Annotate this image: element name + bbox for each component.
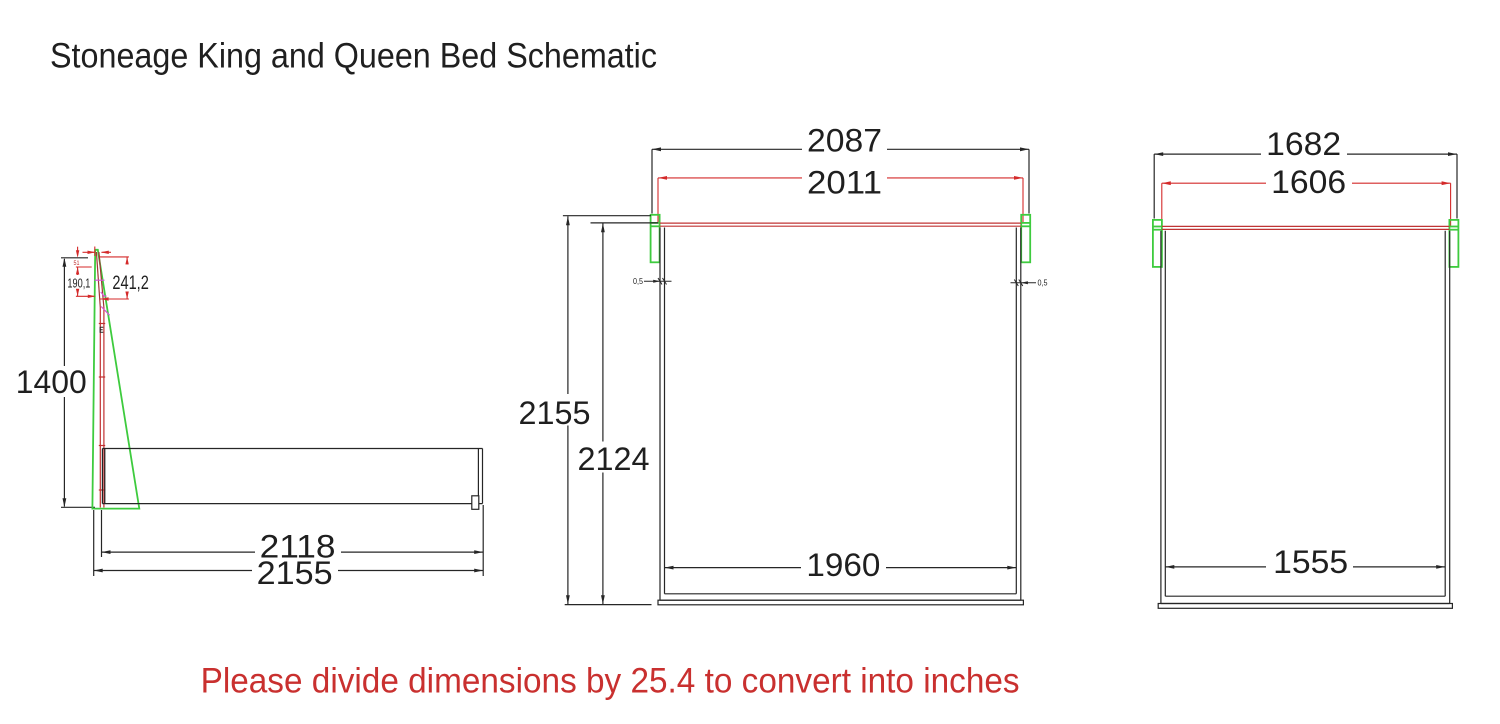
svg-text:0,5: 0,5 xyxy=(1038,279,1048,288)
svg-text:2087: 2087 xyxy=(807,123,882,159)
svg-text:0,5: 0,5 xyxy=(633,277,643,286)
svg-text:2155: 2155 xyxy=(257,555,333,591)
svg-text:51: 51 xyxy=(74,261,81,267)
svg-text:241,2: 241,2 xyxy=(112,273,149,294)
svg-text:2124: 2124 xyxy=(578,441,650,477)
svg-text:1555: 1555 xyxy=(1273,544,1348,580)
svg-text:2155: 2155 xyxy=(519,395,591,431)
svg-text:1606: 1606 xyxy=(1271,164,1346,200)
svg-text:Please divide dimensions by 25: Please divide dimensions by 25.4 to conv… xyxy=(201,662,1020,701)
svg-text:1960: 1960 xyxy=(806,547,880,583)
svg-text:Stoneage King and Queen Bed Sc: Stoneage King and Queen Bed Schematic xyxy=(50,35,657,75)
svg-text:1682: 1682 xyxy=(1266,126,1341,162)
svg-text:2011: 2011 xyxy=(807,165,882,201)
svg-text:1400: 1400 xyxy=(16,364,87,400)
svg-text:190,1: 190,1 xyxy=(67,276,90,291)
